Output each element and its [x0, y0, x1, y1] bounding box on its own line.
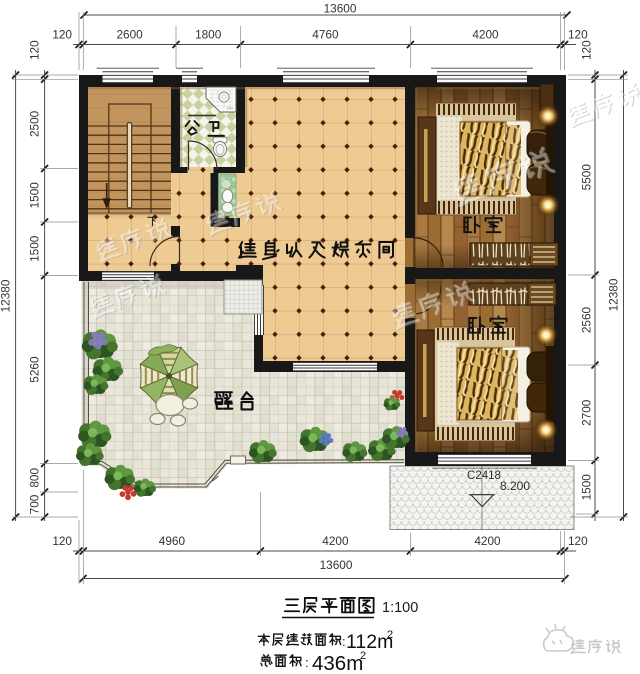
- svg-text:13600: 13600: [324, 2, 357, 16]
- svg-text:5500: 5500: [580, 164, 594, 191]
- svg-text:120: 120: [52, 28, 72, 42]
- svg-text:120: 120: [568, 28, 588, 42]
- svg-text:12380: 12380: [0, 279, 13, 312]
- svg-text:120: 120: [568, 534, 588, 548]
- svg-text:8.200: 8.200: [500, 479, 530, 493]
- svg-text:120: 120: [28, 40, 42, 60]
- svg-text:700: 700: [28, 494, 42, 514]
- svg-text:2: 2: [360, 650, 366, 662]
- svg-text:12380: 12380: [607, 278, 621, 311]
- svg-text:2560: 2560: [580, 306, 594, 333]
- svg-text:4200: 4200: [472, 28, 499, 42]
- svg-text::: :: [305, 655, 309, 670]
- svg-text:1800: 1800: [195, 28, 222, 42]
- svg-text:120: 120: [52, 534, 72, 548]
- svg-text:436m: 436m: [312, 652, 363, 674]
- svg-text:2600: 2600: [116, 28, 143, 42]
- svg-text:4200: 4200: [474, 534, 501, 548]
- svg-text:1500: 1500: [28, 182, 42, 209]
- svg-text:DN: DN: [227, 106, 233, 111]
- svg-text:13600: 13600: [320, 558, 353, 572]
- svg-text:5260: 5260: [28, 356, 42, 383]
- svg-text:4200: 4200: [322, 534, 349, 548]
- svg-text:1500: 1500: [580, 474, 594, 501]
- svg-text:1:100: 1:100: [382, 600, 418, 616]
- svg-text:2500: 2500: [28, 110, 42, 137]
- svg-text:800: 800: [28, 468, 42, 488]
- svg-text:2700: 2700: [580, 399, 594, 426]
- svg-text:120: 120: [580, 40, 594, 60]
- svg-text:C2418: C2418: [467, 470, 501, 482]
- svg-text:4960: 4960: [159, 534, 186, 548]
- svg-text:1500: 1500: [28, 235, 42, 262]
- svg-text:4760: 4760: [312, 28, 339, 42]
- svg-text:2: 2: [387, 629, 393, 641]
